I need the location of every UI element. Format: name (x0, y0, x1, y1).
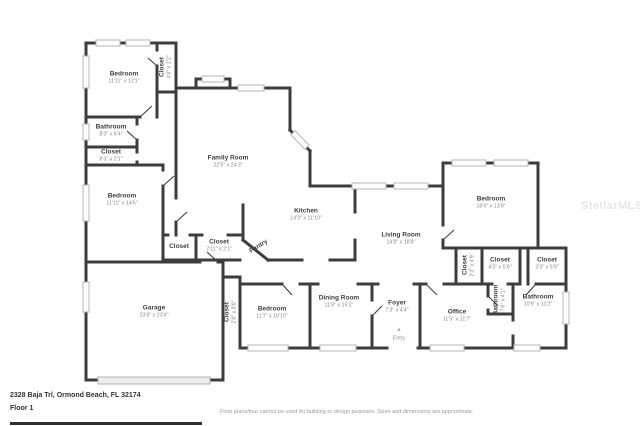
room-label-family-room: Family Room 22'5" x 24'3" (208, 154, 249, 169)
room-dims: 11'11" x 12'1" (108, 79, 139, 86)
room-dims: 4'8" x 2'2" (167, 55, 174, 78)
room-label-bathroom-3: Bathroom 10'9" x 11'2" (523, 293, 554, 308)
room-name: Closet (223, 300, 231, 323)
room-label-hall-closet-b: Closet 7'11" x 2'1" (206, 238, 232, 253)
room-name: Closet (535, 256, 558, 264)
room-dims: 7'11" x 2'1" (206, 247, 232, 254)
room-label-bedroom-3: Bedroom 18'6" x 13'9" (476, 195, 505, 210)
room-name: Bedroom (256, 305, 288, 313)
room-label-hall-closet-a: Closet (169, 243, 189, 251)
room-name: Bedroom (476, 195, 505, 203)
room-label-foyer: Foyer 7'3" x 4'4" (385, 299, 408, 314)
room-dims: 2'3" x 4'9" (470, 253, 477, 276)
room-label-closet-r2: Closet 4'3" x 5'9" (488, 256, 511, 271)
room-label-kitchen: Kitchen 14'3" x 11'10" (290, 207, 322, 222)
room-dims: 10'9" x 11'2" (523, 302, 554, 309)
room-dims: 18'6" x 13'9" (476, 204, 505, 211)
room-dims: 8'3" x 5'4" (96, 132, 127, 139)
room-name: Kitchen (290, 207, 322, 215)
room-name: Garage (139, 304, 168, 312)
floorplan-page: StellarMLS Bedroom 11'11" x 12'1" Closet… (0, 0, 640, 426)
address-text: 2328 Baja Trl, Ormond Beach, FL 32174 (10, 392, 141, 399)
floor-label: Floor 1 (10, 405, 33, 412)
room-name: Family Room (208, 154, 249, 162)
room-name: Closet (169, 243, 189, 251)
room-dims: 8'3" x 2'1" (99, 157, 122, 164)
room-label-garage-closet: Closet 2'8" x 8'8" (223, 300, 238, 323)
room-name: Living Room (381, 231, 420, 239)
room-dims: 14'8" x 18'8" (381, 240, 420, 247)
room-dims: 2'8" x 8'8" (232, 300, 239, 323)
watermark: StellarMLS (581, 200, 640, 212)
room-name: Dining Room (319, 294, 359, 302)
room-label-office: Office 11'5" x 11'7" (443, 308, 471, 323)
room-dims: 4'3" x 5'9" (488, 265, 511, 272)
room-dims: 7'6" x 4'1" (501, 285, 508, 316)
room-name: Bedroom (106, 192, 137, 200)
room-name: Bedroom (108, 70, 139, 78)
room-name: Entry (393, 336, 405, 343)
room-dims: 22'5" x 24'3" (208, 163, 249, 170)
room-name: Closet (461, 253, 469, 276)
room-label-bedroom-4: Bedroom 11'7" x 10'10" (256, 305, 288, 320)
room-name: Closet (158, 55, 166, 78)
room-dims: 7'3" x 4'4" (385, 308, 408, 315)
room-label-bathroom-2: Bathroom 7'6" x 4'1" (492, 285, 507, 316)
room-label-bathroom-1: Bathroom 8'3" x 5'4" (96, 123, 127, 138)
room-name: Office (443, 308, 471, 316)
disclaimer-text: Floor plans/tour cannot be used for buil… (220, 409, 473, 415)
room-name: Closet (488, 256, 511, 264)
room-name: Bathroom (523, 293, 554, 301)
room-label-closet-r1: Closet 2'3" x 4'9" (461, 253, 476, 276)
room-dims: 3'3" x 5'9" (535, 265, 558, 272)
room-name: Bathroom (492, 285, 500, 316)
room-label-closet-r3: Closet 3'3" x 5'9" (535, 256, 558, 271)
room-label-closet-top: Closet 4'8" x 2'2" (158, 55, 173, 78)
room-label-garage: Garage 23'8" x 23'4" (139, 304, 168, 319)
room-dims: 14'3" x 11'10" (290, 216, 322, 223)
room-dims: 23'8" x 23'4" (139, 313, 168, 320)
garage-door (98, 377, 210, 384)
footer-bar (10, 422, 202, 425)
entry-arrow-icon: ▲ (396, 327, 402, 333)
room-label-bedroom-2: Bedroom 11'11" x 14'6" (106, 192, 137, 207)
room-name: Bathroom (96, 123, 127, 131)
walls-group (86, 43, 566, 380)
room-label-dining-room: Dining Room 11'8" x 15'3" (319, 294, 359, 309)
room-dims: 11'7" x 10'10" (256, 314, 288, 321)
room-name: Foyer (385, 299, 408, 307)
room-dims: 11'8" x 15'3" (319, 303, 359, 310)
room-name: Closet (206, 238, 232, 246)
room-label-living-room: Living Room 14'8" x 18'8" (381, 231, 420, 246)
room-dims: 11'5" x 11'7" (443, 317, 471, 324)
room-label-entry: Entry (393, 336, 405, 343)
room-label-closet-1: Closet 8'3" x 2'1" (99, 148, 122, 163)
room-name: Closet (99, 148, 122, 156)
room-label-bedroom-1: Bedroom 11'11" x 12'1" (108, 70, 139, 85)
room-dims: 11'11" x 14'6" (106, 201, 137, 208)
